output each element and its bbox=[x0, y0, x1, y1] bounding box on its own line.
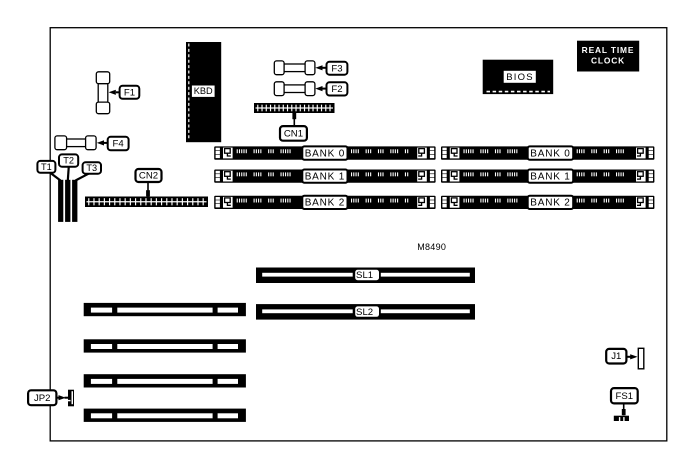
svg-text:BANK 2: BANK 2 bbox=[530, 198, 570, 209]
svg-text:T1: T1 bbox=[41, 162, 52, 172]
svg-text:BANK 0: BANK 0 bbox=[530, 148, 570, 159]
svg-text:SL2: SL2 bbox=[356, 307, 373, 318]
svg-text:T3: T3 bbox=[86, 163, 97, 173]
svg-text:FS1: FS1 bbox=[616, 391, 634, 402]
svg-text:BANK 1: BANK 1 bbox=[305, 171, 345, 182]
svg-text:BANK 2: BANK 2 bbox=[305, 198, 345, 209]
svg-text:BIOS: BIOS bbox=[506, 72, 534, 83]
svg-text:J1: J1 bbox=[611, 351, 621, 362]
svg-text:CN2: CN2 bbox=[139, 171, 158, 182]
svg-text:BANK 0: BANK 0 bbox=[305, 148, 345, 159]
svg-text:BANK 1: BANK 1 bbox=[530, 171, 570, 182]
svg-text:F3: F3 bbox=[331, 63, 342, 74]
svg-text:KBD: KBD bbox=[194, 86, 213, 96]
svg-text:F2: F2 bbox=[331, 84, 342, 95]
svg-text:REAL TIME: REAL TIME bbox=[582, 45, 635, 55]
svg-text:SL1: SL1 bbox=[356, 270, 373, 281]
svg-text:M8490: M8490 bbox=[417, 242, 446, 252]
svg-text:CLOCK: CLOCK bbox=[591, 56, 625, 66]
svg-text:CN1: CN1 bbox=[284, 128, 303, 139]
svg-text:F1: F1 bbox=[124, 87, 135, 98]
svg-text:F4: F4 bbox=[113, 139, 125, 150]
svg-text:JP2: JP2 bbox=[34, 393, 51, 404]
svg-text:T2: T2 bbox=[63, 155, 74, 165]
